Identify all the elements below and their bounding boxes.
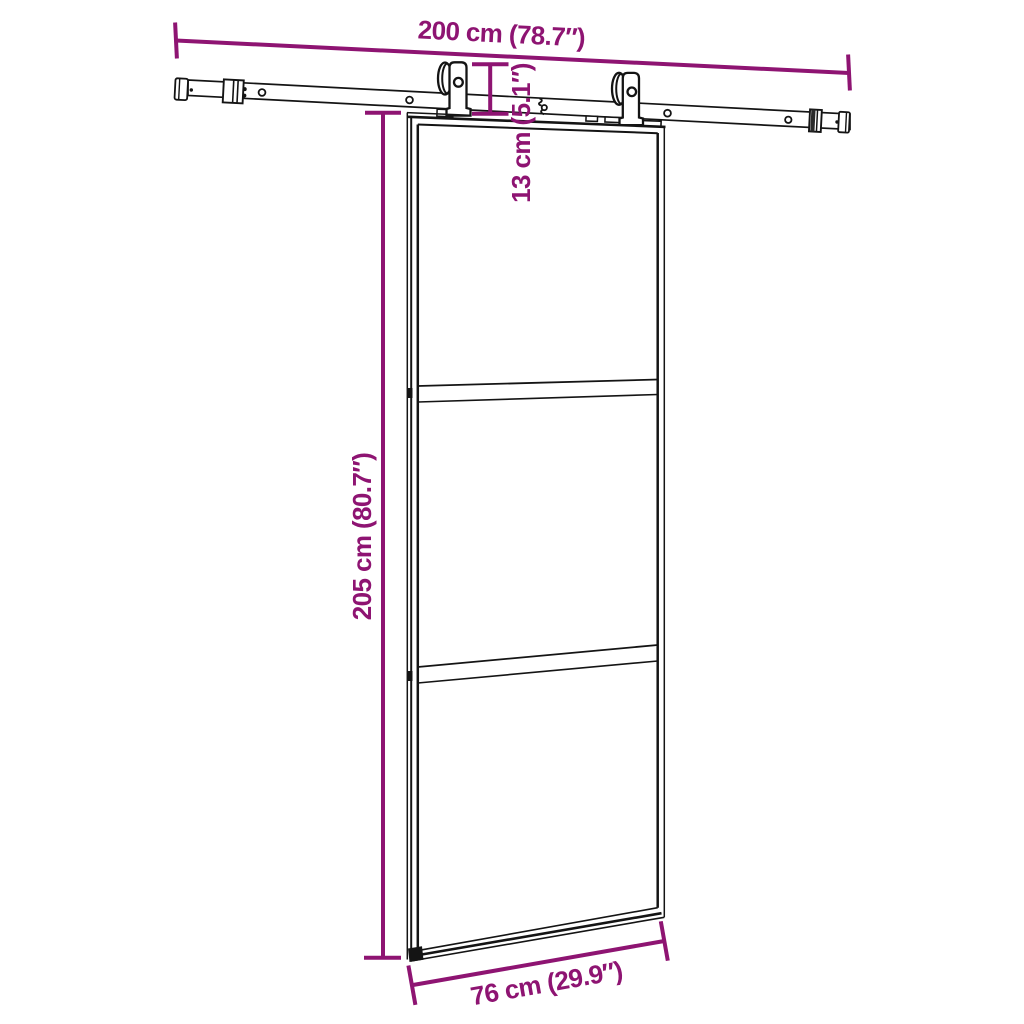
svg-text:13 cm (5.1″): 13 cm (5.1″) <box>506 63 536 203</box>
svg-text:205 cm (80.7″): 205 cm (80.7″) <box>347 453 377 620</box>
